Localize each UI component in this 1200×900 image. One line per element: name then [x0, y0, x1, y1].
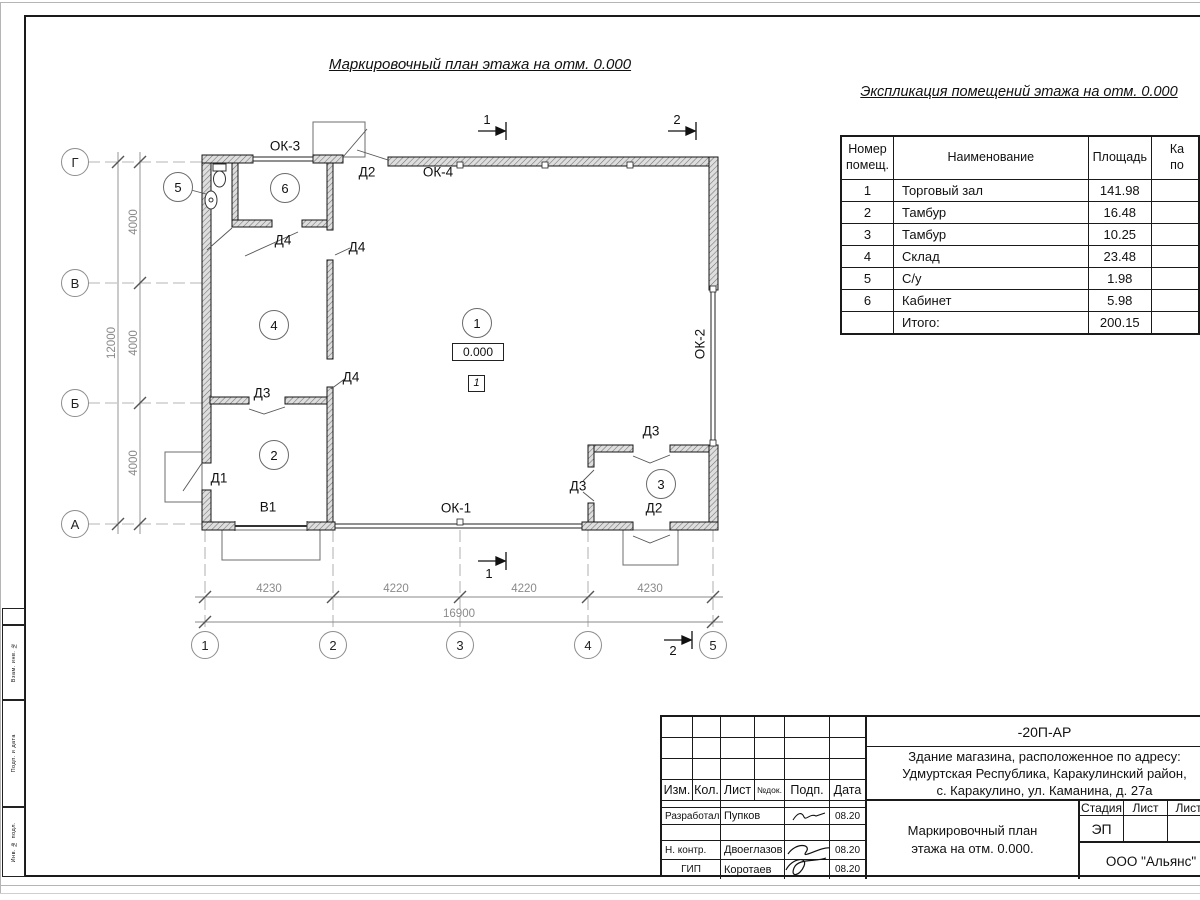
margin-stamp-label: Взам. инв. №	[11, 642, 17, 682]
tb-date: 08.20	[830, 808, 867, 825]
room-number	[841, 312, 894, 335]
tb-cell	[662, 738, 693, 759]
tb-cell	[662, 759, 693, 780]
tb-date: 08.20	[830, 841, 867, 860]
room-category	[1151, 268, 1199, 290]
margin-stamp-vzam: Взам. инв. №	[2, 625, 25, 700]
tb-sheet-title: Маркировочный план этажа на отм. 0.000.	[867, 801, 1080, 879]
tb-cell	[662, 825, 721, 841]
room-name: Тамбур	[894, 202, 1089, 224]
tb-cell	[785, 759, 830, 780]
table-row: 1Торговый зал141.98	[841, 180, 1199, 202]
porch-outlines	[165, 122, 678, 565]
room-area: 5.98	[1088, 290, 1151, 312]
tb-sheets-value	[1168, 816, 1200, 843]
elevation-mark: 0.000	[452, 343, 504, 361]
tb-role: ГИП	[662, 860, 721, 879]
plan-title: Маркировочный план этажа на отм. 0.000	[280, 56, 680, 73]
room-number: 6	[841, 290, 894, 312]
tb-cell	[830, 738, 867, 759]
tb-name: Коротаев	[721, 860, 785, 879]
tb-cell	[693, 759, 721, 780]
room-category	[1151, 290, 1199, 312]
tb-cell	[693, 738, 721, 759]
tb-stage-value: ЭП	[1080, 816, 1124, 843]
tb-col-podp: Подп.	[785, 780, 830, 801]
tb-cell	[830, 759, 867, 780]
tb-cell	[785, 825, 830, 841]
explication-header-row: Номер помещ. Наименование Площадь Ка по	[841, 136, 1199, 180]
tb-cell	[785, 717, 830, 738]
col-header-name: Наименование	[894, 136, 1089, 180]
tb-cell	[662, 717, 693, 738]
sink-icon	[205, 191, 217, 209]
margin-stamp-label: Инв. № подл.	[11, 822, 17, 862]
tb-col-ndok: №док.	[755, 780, 785, 801]
tb-cell	[755, 738, 785, 759]
room-number: 3	[841, 224, 894, 246]
tb-cell	[830, 825, 867, 841]
tb-address: Здание магазина, расположенное по адресу…	[867, 747, 1200, 801]
tb-cell	[755, 717, 785, 738]
explication-table: Номер помещ. Наименование Площадь Ка по …	[840, 135, 1200, 335]
margin-stamp-label: Подп. и дата	[11, 734, 17, 772]
explication-title: Экспликация помещений этажа на отм. 0.00…	[836, 84, 1200, 100]
tb-doc-number: -20П-АР	[867, 717, 1200, 747]
tb-role: Разработал	[662, 808, 721, 825]
tb-cell	[662, 801, 721, 808]
room-number: 1	[841, 180, 894, 202]
tb-name: Пупков	[721, 808, 785, 825]
tb-date: 08.20	[830, 860, 867, 879]
tb-cell	[721, 801, 785, 808]
margin-stamp-box	[2, 608, 25, 625]
room-name: С/у	[894, 268, 1089, 290]
tb-cell	[721, 825, 785, 841]
room-number: 2	[841, 202, 894, 224]
col-header-area: Площадь	[1088, 136, 1151, 180]
floor-type-mark: 1	[468, 375, 485, 392]
room-name: Кабинет	[894, 290, 1089, 312]
tb-stage-label: Стадия	[1080, 801, 1124, 816]
room-number: 5	[841, 268, 894, 290]
tb-col-izm: Изм.	[662, 780, 693, 801]
table-row: 3Тамбур10.25	[841, 224, 1199, 246]
tb-cell	[721, 759, 755, 780]
table-total-row: Итого:200.15	[841, 312, 1199, 335]
tb-cell	[755, 759, 785, 780]
room-area: 10.25	[1088, 224, 1151, 246]
tb-sheet-label: Лист	[1124, 801, 1168, 816]
table-row: 5С/у1.98	[841, 268, 1199, 290]
col-header-category: Ка по	[1151, 136, 1199, 180]
tb-signature-cell	[785, 841, 830, 860]
table-row: 4Склад23.48	[841, 246, 1199, 268]
leader-lines	[183, 129, 670, 543]
tb-sheets-label: Листов	[1168, 801, 1200, 816]
title-block: Изм. Кол. Лист №док. Подп. Дата Разработ…	[660, 715, 1200, 877]
total-label: Итого:	[894, 312, 1089, 335]
toilet-icon	[213, 164, 226, 187]
col-header-number: Номер помещ.	[841, 136, 894, 180]
room-category	[1151, 202, 1199, 224]
room-name: Тамбур	[894, 224, 1089, 246]
drawing-sheet: { "plan": { "title": "Маркировочный план…	[0, 0, 1200, 900]
margin-stamp-podp: Подп. и дата	[2, 700, 25, 807]
room-category	[1151, 312, 1199, 335]
room-category	[1151, 246, 1199, 268]
tb-cell	[721, 717, 755, 738]
table-row: 2Тамбур16.48	[841, 202, 1199, 224]
room-area: 141.98	[1088, 180, 1151, 202]
section-marks	[478, 122, 696, 649]
room-number: 4	[841, 246, 894, 268]
tb-col-data: Дата	[830, 780, 867, 801]
room-area: 16.48	[1088, 202, 1151, 224]
margin-stamp-inv: Инв. № подл.	[2, 807, 25, 877]
tb-sheet-value	[1124, 816, 1168, 843]
tb-name: Двоеглазов	[721, 841, 785, 860]
room-name: Склад	[894, 246, 1089, 268]
tb-role: Н. контр.	[662, 841, 721, 860]
room-category	[1151, 224, 1199, 246]
tb-col-kol: Кол.	[693, 780, 721, 801]
tb-signature-cell	[785, 808, 830, 825]
tb-cell	[693, 717, 721, 738]
tb-cell	[785, 801, 830, 808]
table-row: 6Кабинет5.98	[841, 290, 1199, 312]
room-area: 23.48	[1088, 246, 1151, 268]
tb-signature-cell	[785, 860, 830, 879]
axis-grid-lines	[88, 162, 713, 632]
room-category	[1151, 180, 1199, 202]
tb-cell	[830, 717, 867, 738]
tb-cell	[830, 801, 867, 808]
total-area: 200.15	[1088, 312, 1151, 335]
tb-cell	[785, 738, 830, 759]
tb-col-list: Лист	[721, 780, 755, 801]
tb-company: ООО "Альянс"	[1080, 843, 1200, 879]
room-name: Торговый зал	[894, 180, 1089, 202]
tb-cell	[721, 738, 755, 759]
room-area: 1.98	[1088, 268, 1151, 290]
